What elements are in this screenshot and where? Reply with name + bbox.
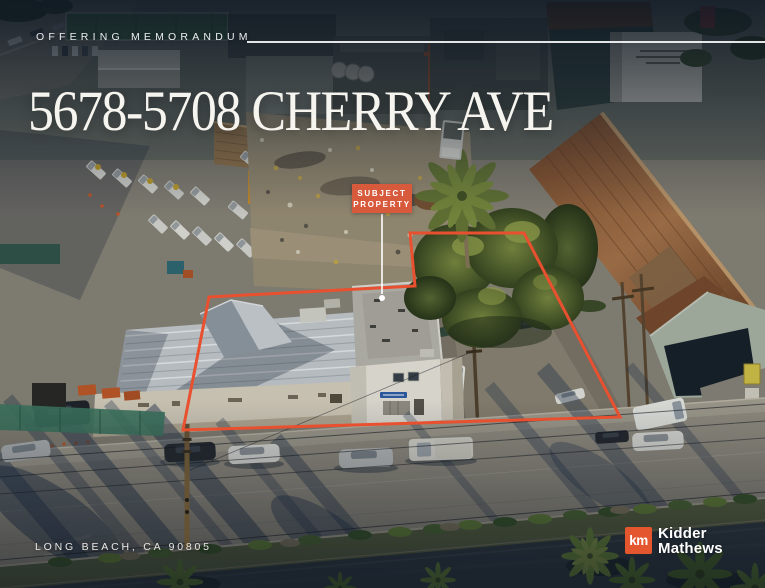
km-logo-icon: km	[625, 527, 652, 554]
location-label: LONG BEACH, CA 90805	[35, 541, 212, 553]
doc-type-label: OFFERING MEMORANDUM	[36, 31, 252, 43]
brand-name-line2: Mathews	[658, 542, 723, 557]
brand-name: Kidder Mathews	[658, 527, 723, 556]
page-title: 5678-5708 CHERRY AVE	[28, 80, 553, 144]
subject-property-badge: SUBJECT PROPERTY	[352, 184, 412, 213]
header-rule	[247, 41, 765, 43]
subject-property-badge-line2: PROPERTY	[352, 200, 412, 211]
subject-property-badge-line1: SUBJECT	[352, 189, 412, 200]
kidder-mathews-logo: km Kidder Mathews	[625, 527, 723, 556]
om-cover-page: OFFERING MEMORANDUM 5678-5708 CHERRY AVE…	[0, 0, 765, 588]
